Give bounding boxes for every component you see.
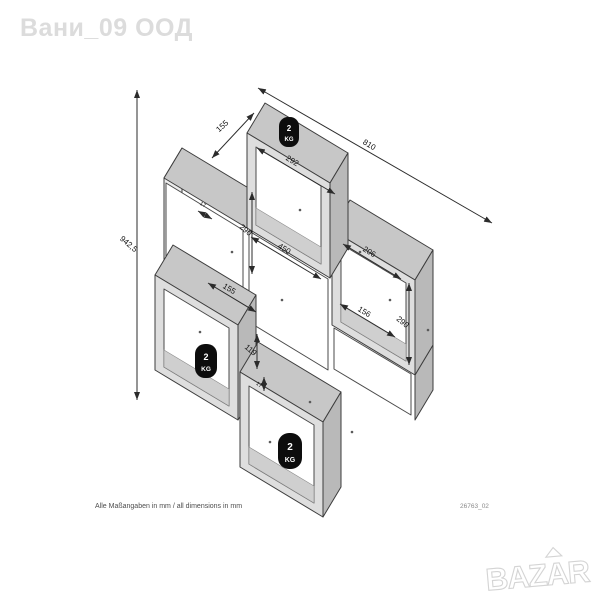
drawing-code: 26763_02	[460, 503, 489, 510]
svg-text:KG: KG	[285, 137, 294, 143]
svg-text:810: 810	[361, 138, 378, 153]
bazar-logo-watermark: BAZAR	[480, 542, 600, 600]
product-image: Вани_09 ООД	[0, 0, 600, 600]
weight-badge-bottom: 2 KG	[278, 433, 302, 469]
weight-badge-top: 2 KG	[279, 117, 299, 147]
dimensions-note: Alle Maßangaben in mm / all dimensions i…	[95, 503, 242, 510]
weight-badge-left: 2 KG	[195, 344, 217, 378]
svg-text:2: 2	[287, 442, 293, 453]
logo-text: BAZAR	[484, 554, 591, 598]
svg-text:KG: KG	[201, 366, 211, 373]
shelf-technical-drawing: 2 KG 2 KG 2 KG 942,5 155 810	[0, 0, 600, 600]
svg-text:2: 2	[287, 124, 292, 133]
dimension-total-height: 942,5	[118, 90, 140, 400]
svg-text:942,5: 942,5	[118, 234, 140, 254]
svg-text:2: 2	[203, 352, 208, 362]
svg-text:155: 155	[214, 118, 230, 134]
svg-text:KG: KG	[285, 457, 296, 464]
